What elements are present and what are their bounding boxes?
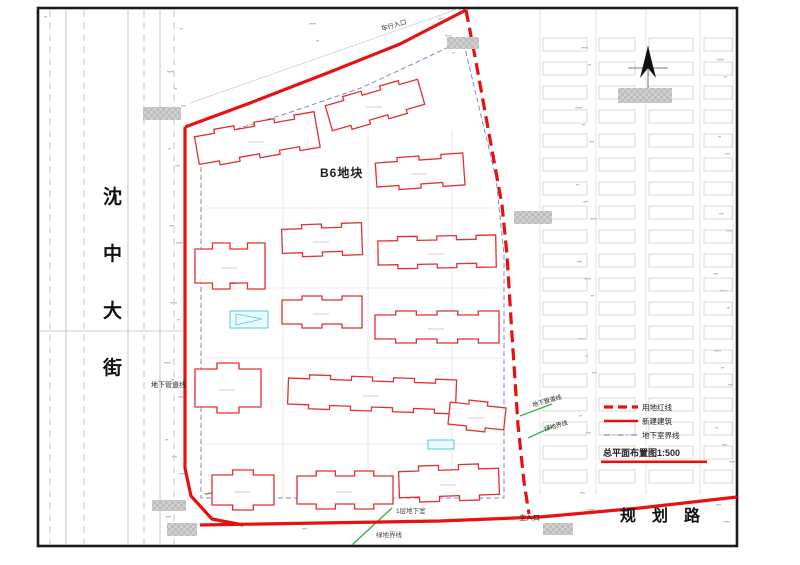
tiny-annotation-mark <box>168 148 171 149</box>
censored-label <box>143 107 181 120</box>
tiny-annotation-mark <box>181 105 186 106</box>
new-building-outline <box>195 243 265 289</box>
tiny-annotation-mark <box>177 319 180 320</box>
tiny-annotation-mark <box>726 230 733 231</box>
tiny-annotation-mark <box>723 521 730 522</box>
tiny-annotation-mark <box>713 273 718 274</box>
tiny-annotation-mark <box>721 367 724 368</box>
tiny-annotation-mark <box>718 136 721 137</box>
tiny-annotation-mark <box>44 16 47 17</box>
tiny-annotation-mark <box>719 213 724 214</box>
tiny-annotation-mark <box>171 379 174 380</box>
tiny-annotation-mark <box>576 184 579 185</box>
tiny-annotation-mark <box>166 516 171 517</box>
tiny-annotation-mark <box>172 456 177 457</box>
tiny-annotation-mark <box>176 242 183 243</box>
plot-label: B6地块 <box>320 165 363 180</box>
new-building-outline <box>375 311 499 343</box>
tiny-annotation-mark <box>180 28 183 29</box>
tiny-annotation-mark <box>577 261 582 262</box>
tiny-annotation-mark <box>316 40 319 41</box>
tiny-annotation-mark <box>589 141 594 142</box>
plan-title-underline <box>601 461 707 464</box>
street-name-left-char: 沈 <box>103 185 122 208</box>
tiny-annotation-mark <box>585 355 588 356</box>
censored-label <box>514 211 552 224</box>
legend-label-new-building: 新建建筑 <box>642 416 672 426</box>
green-boundary-label-bottom: 绿地界线 <box>376 530 403 539</box>
site-plan-drawing: B6地块 规划路 沈中大街 车行入口主入口1层地下室绿地界线地下管道线地下管道线… <box>0 0 800 565</box>
new-building-outline <box>297 471 393 509</box>
tiny-annotation-mark <box>725 153 730 154</box>
new-building-outline <box>195 363 261 413</box>
tiny-annotation-mark <box>587 509 594 510</box>
tiny-annotation-mark <box>309 23 316 24</box>
censored-label <box>152 500 186 511</box>
tiny-annotation-mark <box>438 18 443 19</box>
censored-label <box>543 523 573 535</box>
tiny-annotation-mark <box>722 444 727 445</box>
tiny-annotation-mark <box>588 64 591 65</box>
tiny-annotation-mark <box>164 362 171 363</box>
tiny-annotation-mark <box>586 432 591 433</box>
tiny-annotation-mark <box>724 76 727 77</box>
tiny-annotation-mark <box>729 461 736 462</box>
tiny-annotation-mark <box>583 201 588 202</box>
new-building-outline <box>282 296 362 328</box>
tiny-annotation-mark <box>452 52 455 53</box>
censored-label <box>447 37 479 49</box>
street-name-left-char: 街 <box>102 356 122 379</box>
tiny-annotation-mark <box>167 71 174 72</box>
basement-level-label: 1层地下室 <box>396 506 426 515</box>
tiny-annotation-mark <box>582 124 585 125</box>
tiny-annotation-mark <box>591 295 594 296</box>
tiny-annotation-mark <box>169 225 174 226</box>
legend-label-basement-boundary: 地下室界线 <box>642 430 680 440</box>
tiny-annotation-mark <box>720 290 727 291</box>
tiny-annotation-mark <box>727 307 730 308</box>
tiny-annotation-mark <box>714 350 721 351</box>
legend-label-red-line: 用地红线 <box>642 402 672 412</box>
tiny-annotation-mark <box>174 88 177 89</box>
plan-title: 总平面布置图1:500 <box>603 447 680 458</box>
tiny-annotation-mark <box>581 47 588 48</box>
tiny-annotation-mark <box>590 218 597 219</box>
new-building-outline <box>212 470 274 510</box>
tiny-annotation-mark <box>584 278 591 279</box>
street-name-bottom: 规划路 <box>620 506 716 525</box>
new-building-outline <box>378 235 497 269</box>
tiny-annotation-mark <box>575 107 582 108</box>
tiny-annotation-mark <box>178 396 183 397</box>
tiny-annotation-mark <box>175 165 180 166</box>
tiny-annotation-mark <box>165 439 168 440</box>
tiny-annotation-mark <box>578 338 585 339</box>
tiny-annotation-mark <box>728 384 733 385</box>
pipeline-label-left: 地下管道线 <box>151 380 186 389</box>
tiny-annotation-mark <box>170 302 177 303</box>
censored-label <box>167 523 197 536</box>
water-feature <box>428 440 454 449</box>
tiny-annotation-mark <box>580 492 585 493</box>
street-name-left-char: 中 <box>103 242 122 265</box>
tiny-annotation-mark <box>716 504 721 505</box>
tiny-annotation-mark <box>579 415 582 416</box>
street-name-left-char: 大 <box>103 299 122 322</box>
main-entrance-label: 主入口 <box>519 513 540 522</box>
tiny-annotation-mark <box>302 528 307 529</box>
censored-label <box>618 88 672 103</box>
tiny-annotation-mark <box>445 35 452 36</box>
tiny-annotation-mark <box>715 427 718 428</box>
scanned-site-plan-page: B6地块 规划路 沈中大街 车行入口主入口1层地下室绿地界线地下管道线地下管道线… <box>0 0 800 565</box>
tiny-annotation-mark <box>592 372 597 373</box>
tiny-annotation-mark <box>717 59 724 60</box>
